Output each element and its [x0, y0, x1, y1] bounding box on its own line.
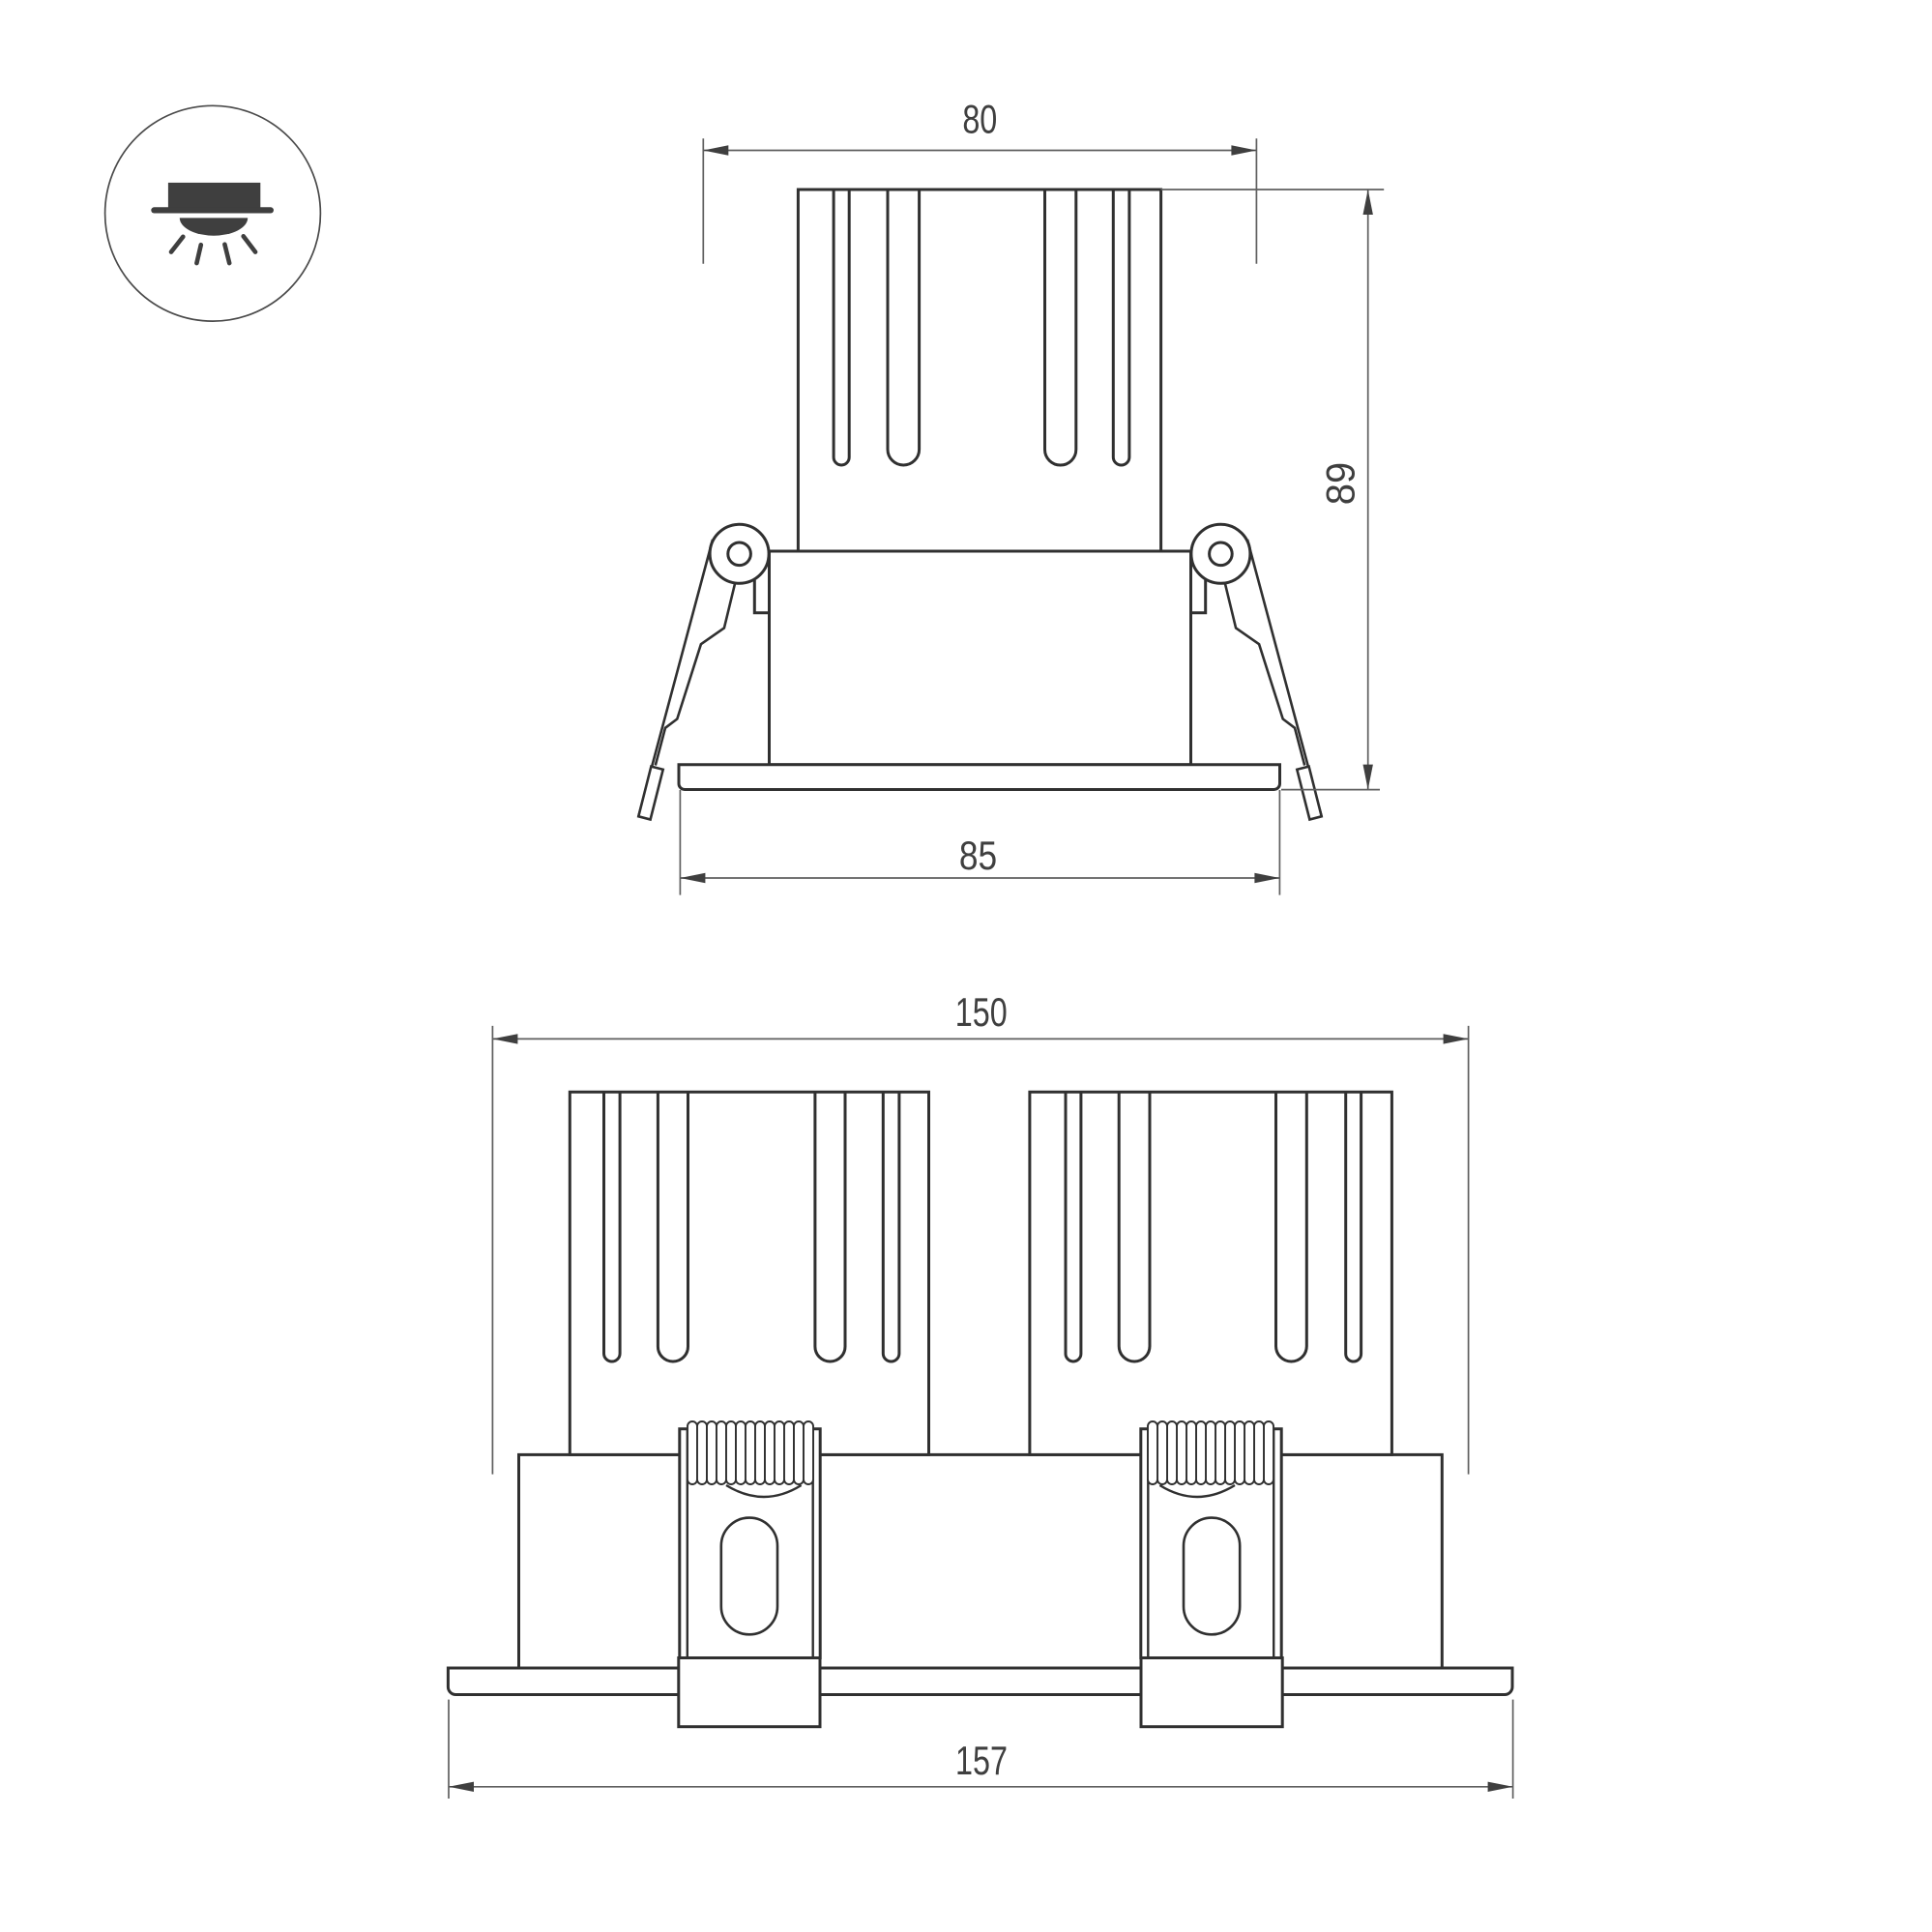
svg-text:157: 157: [955, 1738, 1008, 1783]
svg-text:150: 150: [955, 989, 1008, 1035]
svg-text:89: 89: [1318, 462, 1363, 505]
svg-text:85: 85: [959, 834, 997, 879]
svg-text:80: 80: [962, 96, 997, 141]
